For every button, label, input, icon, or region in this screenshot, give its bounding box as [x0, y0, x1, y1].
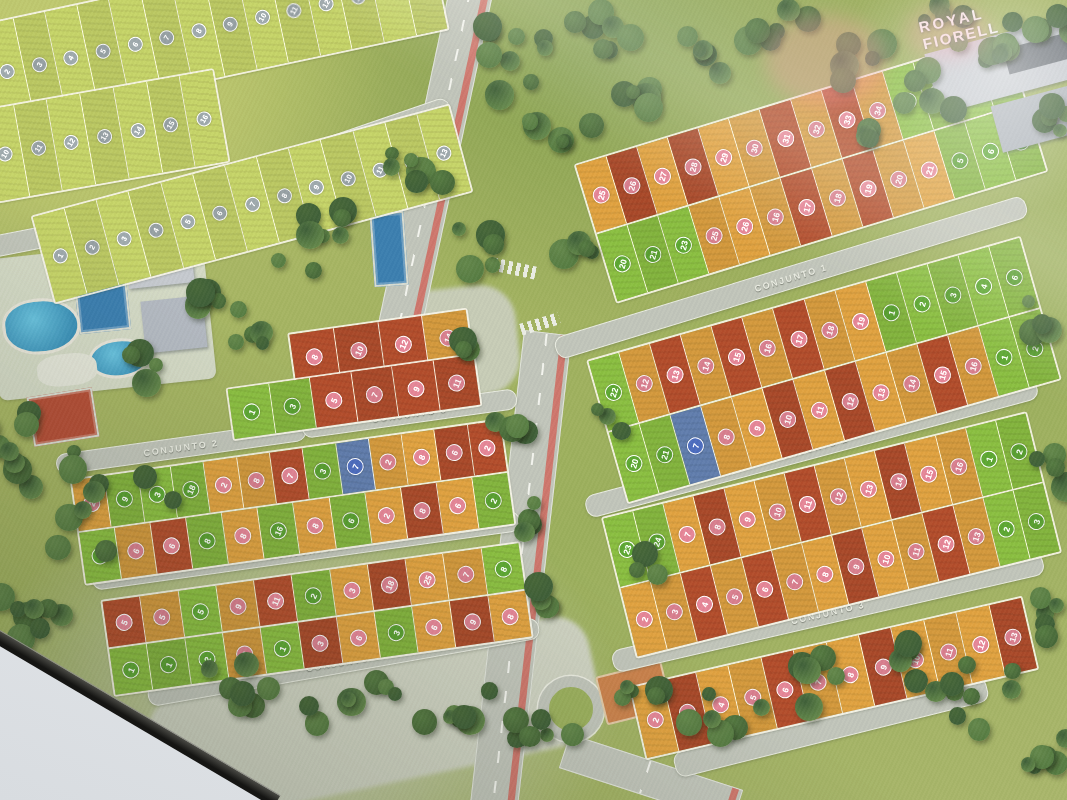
- tree: [963, 688, 980, 705]
- lot-number-badge: 9: [227, 595, 249, 617]
- masterplan-map: ROYAL FIORELL CONJUNTO 1CONJUNTO 2CONJUN…: [0, 0, 1067, 800]
- lot-number-badge: 11: [284, 0, 304, 20]
- lot-number-badge: 13: [665, 364, 686, 385]
- lot-number-badge: 6: [210, 202, 230, 222]
- lot-number-badge: 19: [850, 311, 871, 332]
- tree: [564, 11, 586, 33]
- lot-number-badge: 15: [161, 114, 182, 135]
- tree: [537, 40, 553, 56]
- lot-number-badge: 22: [603, 381, 624, 402]
- lot-number-badge: 2: [476, 437, 498, 459]
- lot-number-badge: 2: [1008, 440, 1029, 461]
- lot: 9: [450, 596, 494, 647]
- lot-number-badge: 12: [61, 132, 82, 153]
- tree: [593, 39, 613, 59]
- lot: 1: [109, 644, 153, 695]
- lot-number-badge: 16: [962, 355, 983, 376]
- lot-number-badge: 29: [713, 147, 734, 168]
- lot: 1: [261, 623, 305, 674]
- lot-number-badge: 12: [392, 333, 414, 355]
- lot-number-badge: 26: [621, 175, 642, 196]
- tree: [634, 93, 664, 123]
- lot-number-badge: 1: [978, 448, 999, 469]
- photo-of-screen: ROYAL FIORELL CONJUNTO 1CONJUNTO 2CONJUN…: [0, 0, 1067, 800]
- lot-number-badge: 8: [232, 525, 254, 547]
- lot-number-badge: 8: [196, 530, 218, 552]
- lot-number-badge: 11: [28, 137, 49, 158]
- tree: [230, 301, 247, 318]
- lot-number-badge: 32: [805, 118, 826, 139]
- lot-number-badge: 6: [125, 34, 145, 54]
- tree: [968, 718, 990, 740]
- lot-number-badge: 2: [302, 584, 324, 606]
- lot-number-badge: 10: [0, 143, 15, 164]
- tree: [164, 491, 182, 509]
- tree: [1053, 124, 1066, 137]
- tree: [612, 422, 630, 440]
- lot-number-badge: 8: [188, 20, 208, 40]
- lot-number-badge: 11: [797, 493, 818, 514]
- lot-number-badge: 11: [905, 540, 926, 561]
- tree: [473, 12, 502, 41]
- tree: [827, 667, 845, 685]
- lot-number-badge: 12: [634, 373, 655, 394]
- lot-number-badge: 1: [50, 245, 70, 265]
- lot: 8: [481, 543, 524, 594]
- lot-number-badge: 3: [281, 394, 303, 416]
- tree: [992, 47, 1007, 62]
- lot: 9: [392, 361, 440, 416]
- lot: 5: [178, 586, 222, 637]
- lot-number-badge: 8: [410, 446, 432, 468]
- lot-number-badge: 28: [683, 156, 704, 177]
- tree: [430, 170, 455, 195]
- lot-number-badge: 25: [416, 568, 438, 590]
- lot-number-badge: 1: [993, 346, 1014, 367]
- lot-number-badge: 3: [385, 621, 407, 643]
- lot-number-badge: 33: [836, 109, 857, 130]
- lot-number-badge: 15: [932, 364, 953, 385]
- lot-number-badge: 1: [157, 653, 179, 675]
- lot-number-badge: 18: [378, 573, 400, 595]
- swimming-pool: [0, 294, 83, 358]
- lot-number-badge: 6: [160, 535, 182, 557]
- lot-number-badge: 2: [996, 518, 1017, 539]
- lot: 5: [310, 372, 358, 427]
- tree: [1021, 757, 1036, 772]
- lot-number-badge: 1: [880, 302, 901, 323]
- lot-number-badge: 6: [1004, 266, 1025, 287]
- tree: [404, 153, 418, 167]
- tree: [647, 687, 665, 705]
- lot-number-badge: 10: [777, 408, 798, 429]
- lot-number-badge: 5: [151, 605, 173, 627]
- lot-number-badge: 11: [264, 589, 286, 611]
- tree: [591, 403, 604, 416]
- lot-number-badge: 9: [747, 417, 768, 438]
- tree: [860, 129, 879, 148]
- lot-number-badge: 10: [252, 7, 272, 27]
- tree: [702, 687, 716, 701]
- tree: [388, 687, 402, 701]
- road-label: CONJUNTO 1: [753, 261, 828, 293]
- tree: [1035, 625, 1058, 648]
- tree: [1002, 680, 1020, 698]
- tree: [132, 369, 160, 397]
- lot-number-badge: 16: [757, 337, 778, 358]
- tree: [904, 669, 928, 693]
- lot-number-badge: 1: [120, 658, 142, 680]
- lot-number-badge: 13: [1002, 626, 1024, 648]
- tree: [753, 699, 769, 715]
- tree: [95, 540, 117, 562]
- lot-number-badge: 7: [784, 571, 805, 592]
- tree: [452, 705, 476, 729]
- lot-number-badge: 5: [113, 611, 135, 633]
- lot-number-badge: 9: [220, 13, 240, 33]
- lot-number-badge: 1: [240, 400, 262, 422]
- lot-number-badge: 12: [839, 391, 860, 412]
- tree: [940, 672, 964, 696]
- tree: [45, 535, 71, 561]
- lot: 7: [444, 548, 488, 599]
- lot: 3: [330, 564, 374, 615]
- lot-number-badge: 2: [377, 451, 399, 473]
- lot-number-badge: 16: [765, 206, 786, 227]
- lot-number-badge: 20: [888, 169, 909, 190]
- tree: [455, 341, 472, 358]
- lot: 1: [228, 384, 276, 439]
- tree: [332, 227, 349, 244]
- tree: [958, 656, 976, 674]
- lot-number-badge: 3: [114, 228, 134, 248]
- tree: [519, 726, 540, 747]
- lot-number-badge: 12: [827, 486, 848, 507]
- tree: [256, 336, 269, 349]
- tree: [299, 696, 319, 716]
- lot-number-badge: 10: [338, 168, 358, 188]
- lot-number-badge: 27: [652, 165, 673, 186]
- lot-number-badge: 14: [901, 373, 922, 394]
- lot-number-badge: 30: [744, 137, 765, 158]
- lot-number-badge: 4: [146, 220, 166, 240]
- lot-number-badge: 2: [482, 489, 504, 511]
- tree: [481, 682, 499, 700]
- lot-number-badge: 4: [61, 47, 81, 67]
- tree: [830, 68, 855, 93]
- lot-number-badge: 7: [156, 27, 176, 47]
- tree: [522, 113, 538, 129]
- lot-number-badge: 9: [404, 377, 426, 399]
- lot-number-badge: 6: [125, 540, 147, 562]
- lot-number-badge: 8: [303, 515, 325, 537]
- tree: [483, 234, 503, 254]
- lot-number-badge: 3: [663, 601, 684, 622]
- lot-number-badge: 18: [819, 319, 840, 340]
- lot: 11: [433, 355, 480, 410]
- tree: [305, 262, 322, 279]
- lot-number-badge: 14: [888, 471, 909, 492]
- tree: [709, 62, 731, 84]
- lot-number-badge: 21: [642, 244, 663, 265]
- lot-number-badge: 10: [875, 548, 896, 569]
- tree: [1004, 663, 1021, 680]
- tree: [676, 709, 703, 736]
- tree: [485, 80, 515, 110]
- lot-number-badge: 13: [870, 382, 891, 403]
- lot-number-badge: 2: [212, 474, 234, 496]
- lot-number-badge: 5: [189, 600, 211, 622]
- lot: 11: [254, 575, 298, 626]
- tree: [296, 221, 325, 250]
- tree: [10, 601, 26, 617]
- lot-number-badge: 9: [306, 177, 326, 197]
- tree: [579, 113, 604, 138]
- tree: [0, 442, 19, 461]
- lot: 7: [351, 366, 399, 421]
- lot-number-badge: 17: [796, 197, 817, 218]
- lot-number-badge: 7: [344, 455, 366, 477]
- tree: [865, 51, 879, 65]
- tree: [133, 465, 157, 489]
- lot: 2: [292, 570, 336, 621]
- lot: 3: [299, 617, 343, 668]
- tree: [122, 346, 140, 364]
- tree: [1002, 12, 1022, 32]
- lot-number-badge: 8: [706, 516, 727, 537]
- tree: [383, 158, 401, 176]
- tree: [895, 630, 923, 658]
- lot-number-badge: 5: [93, 40, 113, 60]
- lot-number-badge: 15: [726, 346, 747, 367]
- lot-number-badge: 13: [857, 478, 878, 499]
- lot-number-badge: 14: [127, 120, 148, 141]
- tree: [949, 707, 966, 724]
- tree: [1039, 93, 1065, 119]
- tree: [745, 18, 770, 43]
- tree: [230, 681, 255, 706]
- tree: [500, 51, 520, 71]
- lot-number-badge: 9: [737, 508, 758, 529]
- tree: [412, 709, 437, 734]
- lot-number-badge: 10: [348, 339, 370, 361]
- lot-number-badge: 2: [82, 237, 102, 257]
- lot: 6: [412, 601, 456, 652]
- lot-number-badge: 6: [423, 616, 445, 638]
- tree: [1056, 729, 1067, 749]
- tree: [186, 278, 215, 307]
- lot-number-badge: 6: [980, 140, 1001, 161]
- lot: 5: [140, 591, 184, 642]
- lot-number-badge: 13: [94, 126, 115, 147]
- lot-number-badge: 3: [311, 460, 333, 482]
- lot-number-badge: 25: [591, 184, 612, 205]
- lot-number-badge: 8: [245, 469, 267, 491]
- lot: 1: [147, 639, 191, 690]
- lot-number-badge: 11: [937, 641, 959, 663]
- lot-number-badge: 16: [948, 455, 969, 476]
- lot-number-badge: 12: [935, 533, 956, 554]
- lot-number-badge: 19: [857, 178, 878, 199]
- lot-number-badge: 26: [734, 215, 755, 236]
- lot-number-badge: 13: [965, 525, 986, 546]
- tree: [795, 693, 823, 721]
- lot-number-badge: 4: [973, 275, 994, 296]
- lot-number-badge: 9: [845, 555, 866, 576]
- lot-number-badge: 6: [347, 626, 369, 648]
- lot-number-badge: 5: [949, 150, 970, 171]
- lot-number-badge: 16: [194, 108, 215, 129]
- lot: 9: [216, 580, 260, 631]
- tree: [540, 728, 554, 742]
- lot: 3: [269, 378, 317, 433]
- tree: [1049, 598, 1064, 613]
- lot-number-badge: 2: [375, 504, 397, 526]
- park-court: [369, 211, 408, 287]
- lot-number-badge: 8: [410, 499, 432, 521]
- lot-number-badge: 13: [434, 142, 454, 162]
- tree: [405, 170, 428, 193]
- lot-number-badge: 6: [774, 678, 796, 700]
- lot-number-badge: 3: [309, 632, 331, 654]
- tree: [893, 92, 916, 115]
- tree: [793, 657, 821, 685]
- tree: [485, 257, 500, 272]
- lot-number-badge: 6: [339, 509, 361, 531]
- lot-number-badge: 11: [446, 371, 468, 393]
- lot-number-badge: 2: [911, 293, 932, 314]
- lot: 5: [103, 596, 147, 647]
- tree: [514, 522, 534, 542]
- tree: [59, 455, 88, 484]
- lot-number-badge: 7: [676, 523, 697, 544]
- lot-number-badge: 7: [685, 435, 706, 456]
- tree: [228, 334, 244, 350]
- lot-number-badge: 8: [274, 185, 294, 205]
- tree: [476, 42, 502, 68]
- lot-number-badge: 21: [919, 159, 940, 180]
- lot-number-badge: 18: [179, 478, 201, 500]
- lot-number-badge: 8: [499, 605, 521, 627]
- lot-number-badge: 21: [654, 444, 675, 465]
- lot-number-badge: 31: [775, 128, 796, 149]
- lot-number-badge: 7: [278, 465, 300, 487]
- lot-number-badge: 2: [644, 709, 666, 731]
- lot-number-badge: 16: [268, 520, 290, 542]
- lot: 25: [406, 554, 450, 605]
- tree: [703, 710, 721, 728]
- deck: [36, 351, 99, 389]
- tree: [83, 481, 105, 503]
- lot-number-badge: 2: [0, 61, 18, 81]
- lot-number-badge: 15: [918, 463, 939, 484]
- lot: 6: [337, 612, 381, 663]
- lot-number-badge: 8: [814, 563, 835, 584]
- lot-number-badge: 9: [461, 610, 483, 632]
- tree: [333, 209, 351, 227]
- tree: [257, 677, 280, 700]
- tree: [1032, 314, 1052, 334]
- lot-number-badge: 9: [113, 488, 135, 510]
- lot-number-badge: 8: [492, 557, 514, 579]
- lot-number-badge: 20: [612, 253, 633, 274]
- tree: [74, 501, 92, 519]
- lot-number-badge: 5: [322, 389, 344, 411]
- tree: [629, 562, 645, 578]
- lot-number-badge: 5: [724, 586, 745, 607]
- tree: [617, 24, 644, 51]
- lot-number-badge: 8: [303, 345, 325, 367]
- lot-number-badge: 12: [316, 0, 336, 14]
- tree: [201, 660, 218, 677]
- lot-number-badge: 4: [694, 593, 715, 614]
- lot: 18: [368, 559, 412, 610]
- lot-number-badge: 18: [826, 187, 847, 208]
- tree: [1029, 451, 1045, 467]
- lot-number-badge: 25: [704, 225, 725, 246]
- lot-number-badge: 3: [942, 284, 963, 305]
- tree: [940, 96, 967, 123]
- lot: 3: [374, 607, 418, 658]
- lot-number-badge: 3: [340, 579, 362, 601]
- road-label: CONJUNTO 2: [143, 437, 220, 457]
- lot: 8: [488, 591, 531, 642]
- tree: [777, 0, 800, 21]
- lot: 2: [472, 473, 514, 528]
- lot-number-badge: 13: [348, 0, 368, 7]
- tree: [1046, 4, 1067, 29]
- lot-number-badge: 7: [242, 194, 262, 214]
- lot-number-badge: 7: [363, 383, 385, 405]
- tree: [452, 222, 466, 236]
- lot-number-badge: 23: [673, 234, 694, 255]
- tree: [271, 253, 286, 268]
- lot-number-badge: 3: [1026, 510, 1047, 531]
- lot-number-badge: 2: [633, 608, 654, 629]
- lot-number-badge: 6: [443, 441, 465, 463]
- lot-number-badge: 7: [454, 563, 476, 585]
- lot-number-badge: 11: [808, 399, 829, 420]
- lot-number-badge: 10: [767, 501, 788, 522]
- tree: [578, 240, 595, 257]
- tree: [523, 74, 538, 89]
- lot-number-badge: 12: [970, 633, 992, 655]
- tree: [1046, 458, 1065, 477]
- lot-number-badge: 8: [716, 426, 737, 447]
- tree: [456, 255, 484, 283]
- tree: [506, 414, 530, 438]
- tree: [508, 28, 524, 44]
- lot-number-badge: 6: [754, 578, 775, 599]
- lot-number-badge: 5: [178, 211, 198, 231]
- lot-number-badge: 3: [29, 54, 49, 74]
- lot-number-badge: 1: [271, 637, 293, 659]
- lot-number-badge: 6: [446, 494, 468, 516]
- lot-number-badge: 20: [623, 453, 644, 474]
- lot-number-badge: 17: [788, 328, 809, 349]
- tree: [30, 618, 50, 638]
- lot-number-badge: 14: [695, 355, 716, 376]
